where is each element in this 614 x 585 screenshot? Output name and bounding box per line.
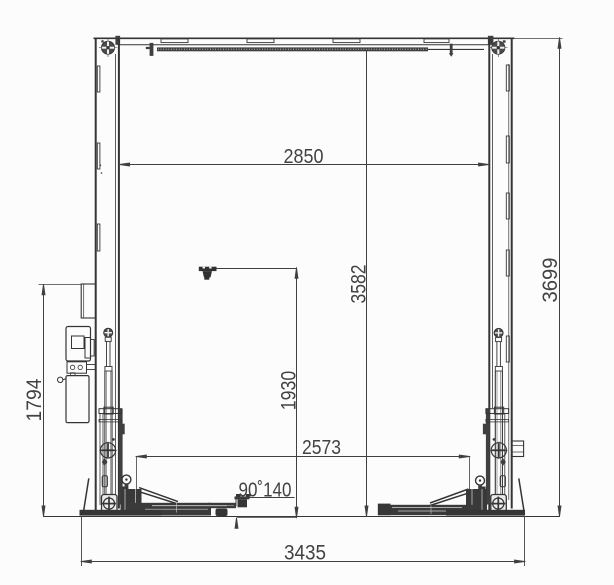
svg-text:3699: 3699 [539,258,562,303]
svg-text:1794: 1794 [23,378,46,421]
svg-text:3435: 3435 [284,540,326,564]
svg-text:2850: 2850 [284,146,324,168]
svg-text:90˚140: 90˚140 [239,478,292,501]
svg-text:2573: 2573 [302,436,341,459]
svg-text:3582: 3582 [348,265,371,304]
svg-text:1930: 1930 [278,371,301,411]
